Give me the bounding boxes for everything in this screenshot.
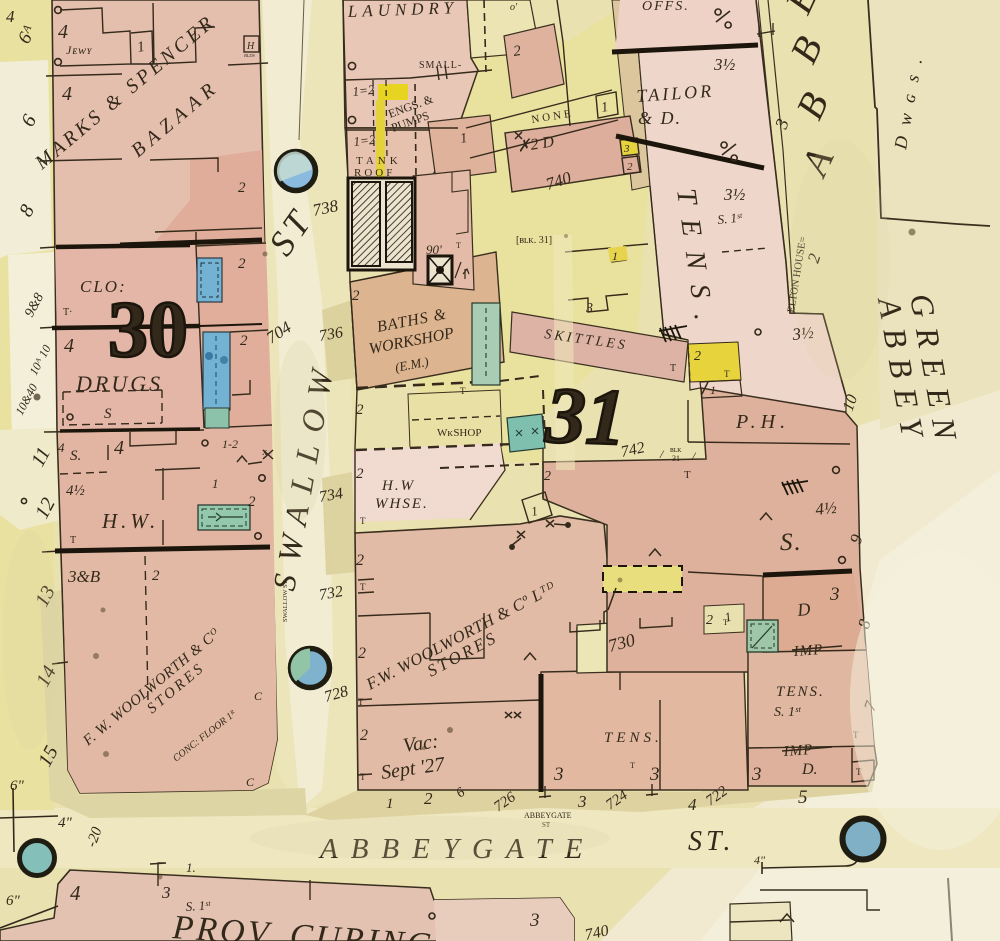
svg-text:3: 3	[751, 764, 762, 785]
svg-text:4: 4	[58, 21, 68, 43]
svg-text:C: C	[254, 689, 263, 703]
svg-text:3&B: 3&B	[67, 567, 101, 586]
svg-text:ST.: ST.	[688, 826, 735, 857]
svg-text:T: T	[724, 369, 730, 379]
svg-text:T: T	[630, 761, 635, 770]
svg-text:1: 1	[386, 796, 394, 812]
svg-text:1: 1	[612, 249, 618, 263]
svg-text:30: 30	[108, 286, 188, 374]
svg-text:BLDS: BLDS	[244, 53, 256, 58]
svg-text:OFFS.: OFFS.	[642, 0, 690, 14]
svg-text:4": 4"	[754, 853, 766, 867]
svg-text:T: T	[360, 516, 366, 526]
svg-text:1=2: 1=2	[353, 132, 377, 149]
svg-text:3: 3	[553, 764, 564, 785]
svg-text:2: 2	[152, 568, 160, 584]
svg-text:4: 4	[688, 795, 697, 814]
svg-text:2: 2	[544, 469, 551, 484]
svg-text:T: T	[460, 386, 466, 396]
svg-text:2: 2	[356, 552, 364, 569]
svg-text:2: 2	[238, 256, 246, 272]
svg-text:SMALL-: SMALL-	[419, 60, 462, 71]
svg-text:H: H	[246, 41, 255, 52]
svg-text:6": 6"	[10, 778, 25, 794]
svg-text:2: 2	[240, 333, 248, 349]
svg-text:31: 31	[543, 372, 627, 463]
svg-text:S. 1ˢᵗ: S. 1ˢᵗ	[774, 705, 802, 720]
svg-text:2: 2	[356, 466, 364, 482]
svg-text:4: 4	[64, 335, 74, 357]
svg-text:4: 4	[62, 83, 72, 105]
svg-text:T: T	[723, 618, 728, 627]
svg-text:3½: 3½	[723, 185, 746, 204]
svg-text:T·: T·	[63, 307, 72, 318]
svg-text:T: T	[358, 697, 364, 707]
svg-text:o': o'	[510, 2, 518, 13]
svg-text:3½: 3½	[713, 55, 736, 74]
svg-text:6": 6"	[6, 893, 21, 909]
svg-text:3: 3	[585, 301, 593, 316]
svg-text:1.: 1.	[186, 860, 196, 875]
svg-text:2: 2	[706, 613, 713, 628]
svg-text:ABBEYGATE: ABBEYGATE	[524, 811, 572, 820]
svg-text:2: 2	[360, 727, 368, 744]
svg-text:IMP: IMP	[792, 642, 824, 660]
svg-text:S. 1ˢᵗ: S. 1ˢᵗ	[185, 897, 211, 914]
svg-text:2: 2	[694, 349, 701, 364]
svg-text:1=2: 1=2	[352, 82, 376, 99]
svg-text:3: 3	[649, 764, 660, 785]
svg-text:T: T	[670, 363, 676, 374]
svg-text:TENS.: TENS.	[604, 730, 663, 746]
svg-text:ʙʟᴋ: ʙʟᴋ	[670, 445, 682, 454]
svg-text:T: T	[684, 469, 691, 481]
svg-text:4½: 4½	[814, 498, 837, 519]
svg-text:WᴋSHOP: WᴋSHOP	[437, 427, 481, 439]
svg-text:2: 2	[248, 494, 256, 510]
svg-text:2: 2	[424, 789, 433, 808]
svg-text:3: 3	[529, 910, 540, 931]
svg-text:S: S	[104, 406, 112, 422]
svg-text:T: T	[360, 582, 366, 592]
svg-text:2: 2	[352, 288, 360, 304]
svg-text:DRUGS: DRUGS	[75, 371, 163, 396]
svg-text:WHSE.: WHSE.	[375, 496, 429, 512]
svg-text:TENS.: TENS.	[776, 684, 825, 700]
svg-text:3: 3	[829, 584, 840, 605]
svg-text:5: 5	[798, 787, 808, 808]
svg-text:T: T	[70, 535, 76, 546]
svg-text:[ʙʟᴋ. 31]: [ʙʟᴋ. 31]	[516, 235, 552, 246]
svg-text:H.W: H.W	[381, 478, 415, 494]
svg-text:1-2: 1-2	[222, 437, 238, 451]
svg-text:H.W.: H.W.	[101, 509, 159, 533]
svg-text:SWALLOW ST: SWALLOW ST	[282, 580, 289, 622]
svg-text:3: 3	[577, 792, 587, 811]
svg-text:2: 2	[238, 180, 246, 196]
svg-text:4½: 4½	[66, 483, 85, 499]
svg-text:2: 2	[356, 402, 364, 418]
svg-text:S.: S.	[780, 529, 803, 556]
svg-text:S.: S.	[70, 448, 81, 464]
svg-text:90': 90'	[426, 242, 442, 257]
svg-text:4": 4"	[58, 815, 73, 831]
svg-text:x: x	[262, 446, 268, 458]
svg-text:T: T	[456, 241, 461, 250]
svg-text:4: 4	[6, 7, 15, 26]
svg-text:TANK: TANK	[356, 155, 402, 167]
svg-text:3: 3	[161, 883, 171, 902]
svg-text:1: 1	[710, 383, 716, 397]
svg-text:Jᴇwʏ: Jᴇwʏ	[66, 43, 93, 57]
svg-text:3: 3	[623, 143, 630, 155]
svg-text:1: 1	[212, 476, 219, 491]
svg-text:ROOF: ROOF	[354, 167, 395, 179]
svg-text:D: D	[795, 599, 811, 620]
svg-text:D.: D.	[801, 761, 818, 778]
svg-text:2: 2	[358, 645, 366, 662]
svg-text:4: 4	[70, 881, 81, 905]
svg-text:2: 2	[627, 161, 633, 173]
svg-text:T: T	[360, 772, 366, 782]
svg-text:4: 4	[58, 440, 65, 455]
svg-text:C: C	[246, 775, 255, 789]
svg-text:31: 31	[672, 454, 680, 463]
svg-text:& D.: & D.	[638, 108, 682, 128]
svg-text:S. 1ˢᵗ: S. 1ˢᵗ	[717, 209, 744, 227]
svg-text:P.H.: P.H.	[735, 411, 790, 433]
svg-text:4: 4	[114, 437, 124, 459]
